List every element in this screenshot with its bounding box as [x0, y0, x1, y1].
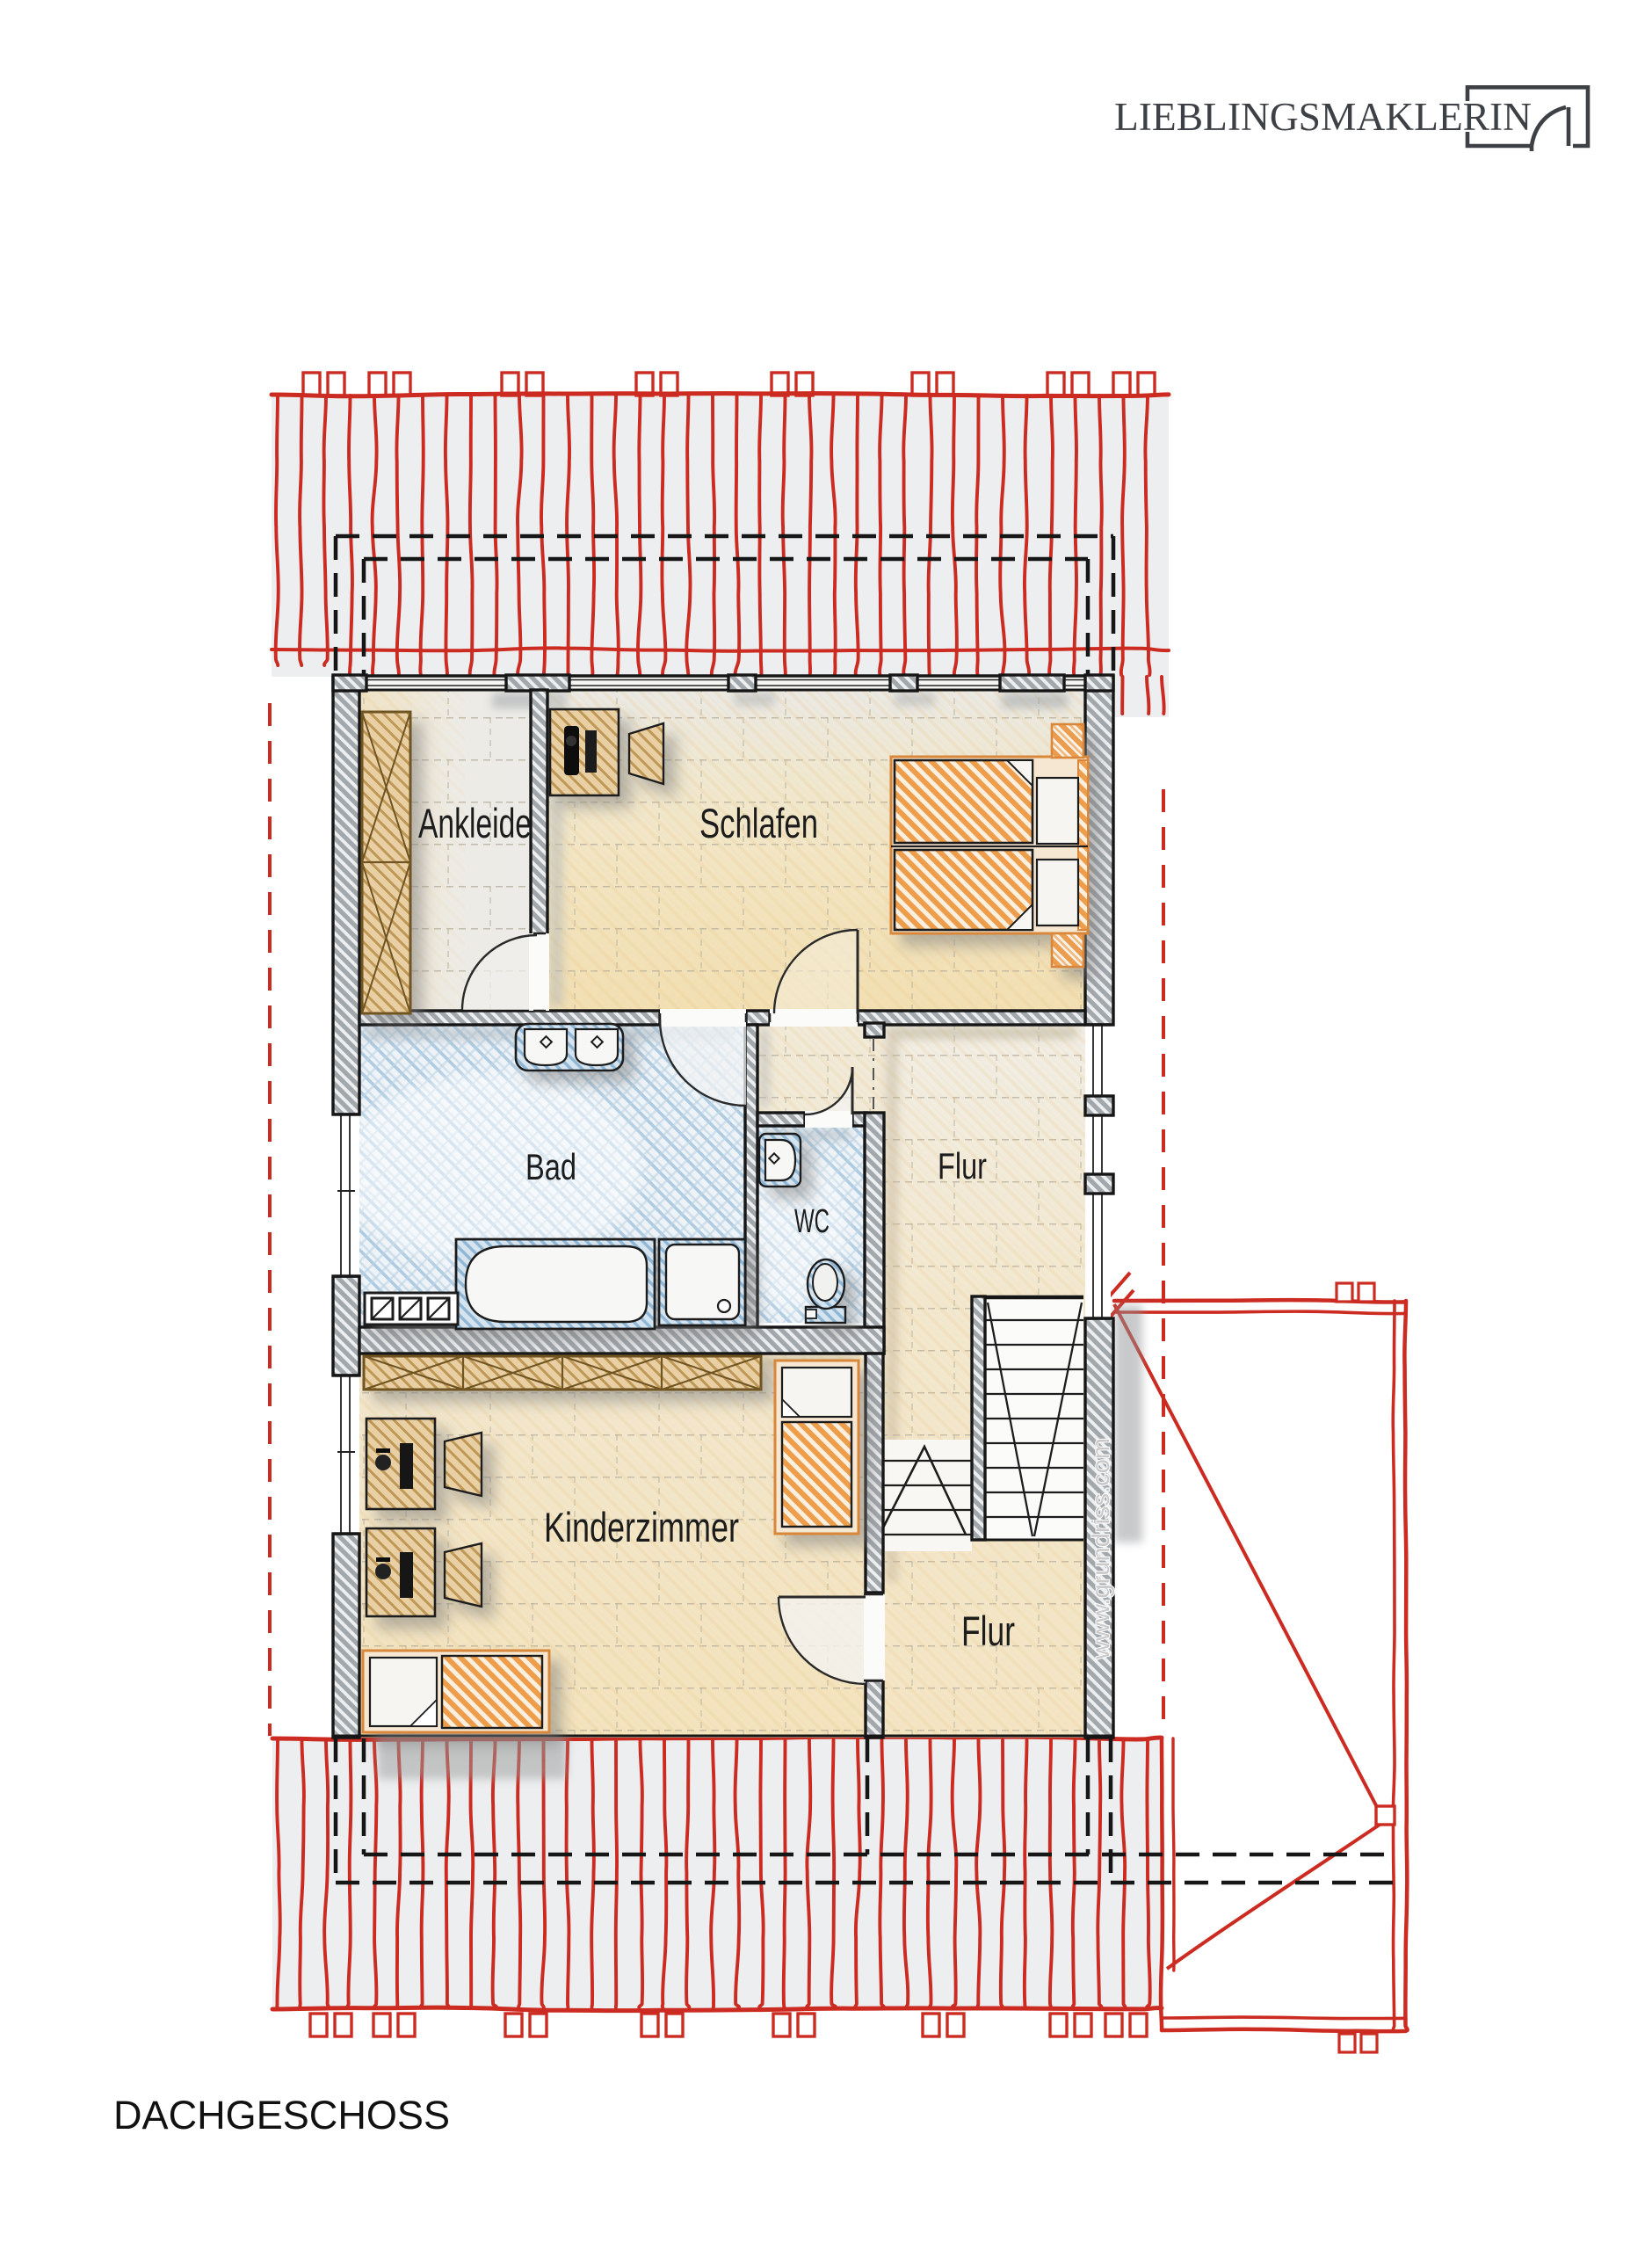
- svg-text:Schlafen: Schlafen: [699, 800, 818, 846]
- svg-text:Bad: Bad: [525, 1146, 576, 1187]
- svg-text:DACHGESCHOSS: DACHGESCHOSS: [113, 2093, 450, 2137]
- svg-text:WC: WC: [794, 1203, 830, 1240]
- svg-text:www.grundriss.com: www.grundriss.com: [1087, 1438, 1114, 1660]
- svg-text:LIEBLINGSMAKLERIN: LIEBLINGSMAKLERIN: [1114, 95, 1532, 139]
- svg-text:Flur: Flur: [961, 1608, 1015, 1654]
- svg-text:Flur: Flur: [938, 1145, 987, 1187]
- svg-text:Kinderzimmer: Kinderzimmer: [544, 1504, 739, 1550]
- svg-text:Ankleide: Ankleide: [418, 800, 532, 846]
